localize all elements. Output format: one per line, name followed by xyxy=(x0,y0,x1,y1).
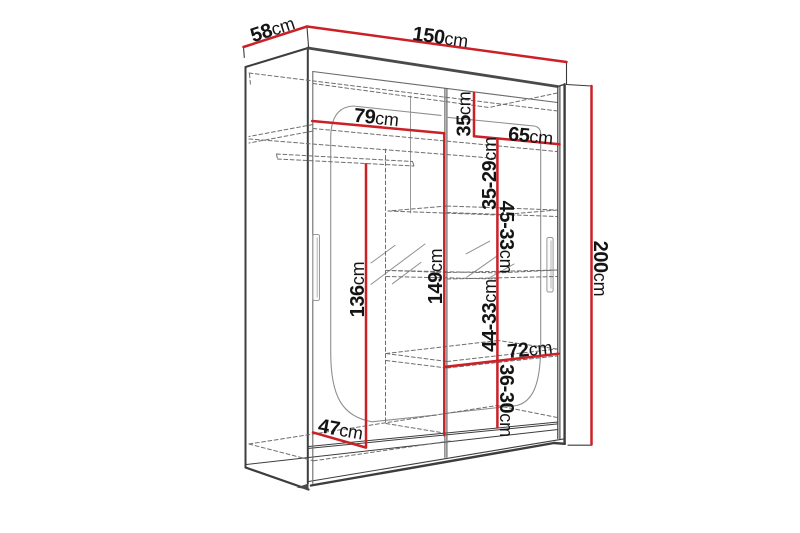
svg-text:200cm: 200cm xyxy=(589,241,611,297)
svg-text:149cm: 149cm xyxy=(425,249,447,305)
svg-text:65cm: 65cm xyxy=(507,123,554,149)
svg-text:44-33cm: 44-33cm xyxy=(479,279,501,352)
svg-text:35-29cm: 35-29cm xyxy=(479,137,501,210)
svg-text:36-30cm: 36-30cm xyxy=(495,364,517,437)
svg-text:79cm: 79cm xyxy=(353,105,400,132)
svg-text:35cm: 35cm xyxy=(454,91,476,136)
svg-text:136cm: 136cm xyxy=(347,262,369,318)
svg-text:45-33cm: 45-33cm xyxy=(495,201,517,274)
